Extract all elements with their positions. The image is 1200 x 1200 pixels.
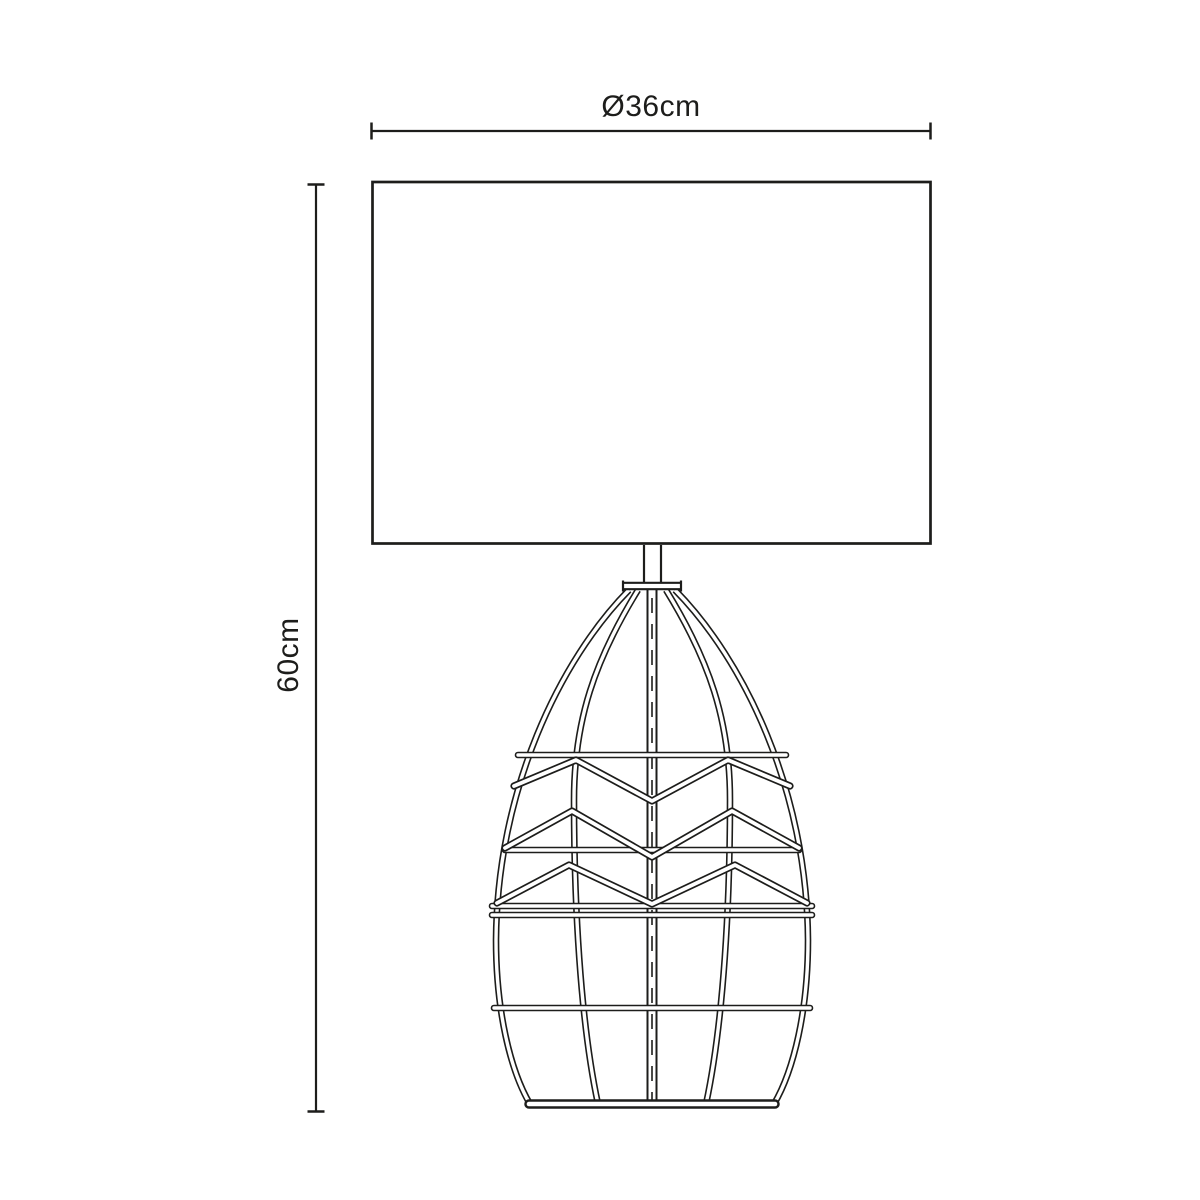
wire-cage [492,581,812,1105]
height-dimension: 60cm [272,185,325,1112]
lamp-shade-outline [373,182,931,544]
width-dimension-label: Ø36cm [601,90,700,123]
lamp-dimension-diagram: Ø36cm 60cm [0,0,1200,1200]
lamp-neck [644,545,661,583]
lamp-shade [373,182,931,544]
width-dimension: Ø36cm [372,90,931,140]
diagram-canvas: Ø36cm 60cm [0,0,1200,1200]
cage-collar [623,581,681,592]
height-dimension-label: 60cm [272,617,305,692]
